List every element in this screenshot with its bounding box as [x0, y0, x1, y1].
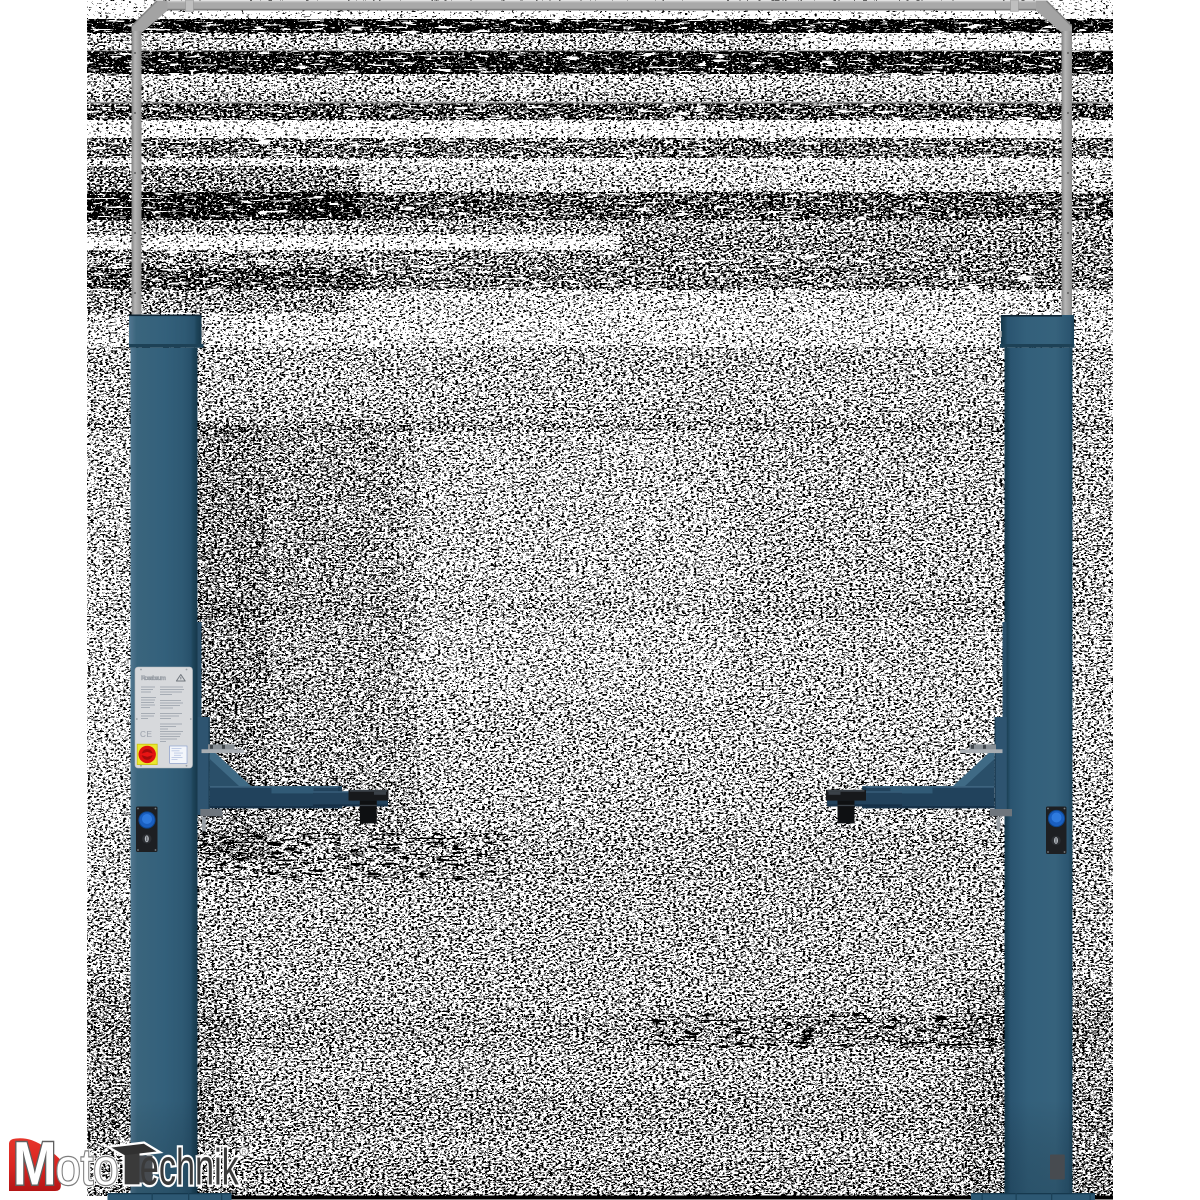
- svg-text:R: R: [242, 1149, 247, 1156]
- svg-text:Rossbaum: Rossbaum: [141, 675, 166, 682]
- svg-text:oto: oto: [56, 1139, 119, 1196]
- svg-text:CE: CE: [140, 730, 153, 739]
- svg-text:echnik: echnik: [140, 1139, 239, 1196]
- svg-text:M: M: [13, 1130, 57, 1198]
